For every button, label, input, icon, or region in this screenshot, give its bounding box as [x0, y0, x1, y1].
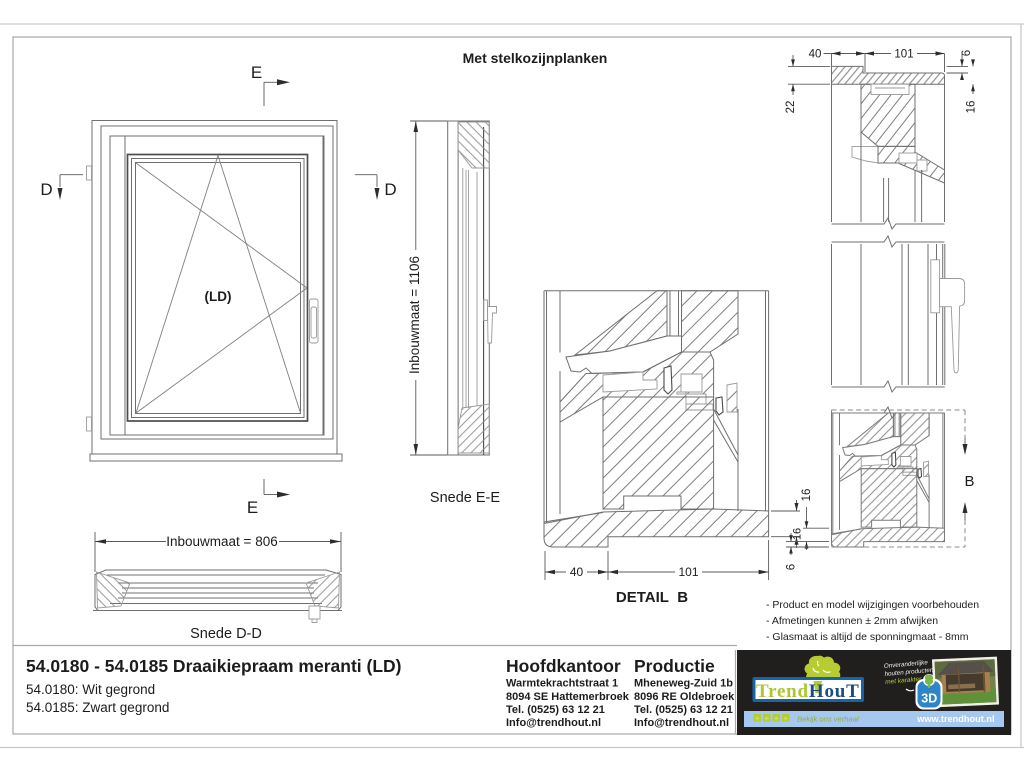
svg-text:✳: ✳ [774, 716, 779, 723]
svg-text:Hoofdkantoor: Hoofdkantoor [506, 656, 621, 676]
svg-text:Info@trendhout.nl: Info@trendhout.nl [634, 717, 729, 729]
svg-text:40: 40 [809, 49, 822, 61]
svg-text:DETAIL B: DETAIL B [616, 589, 688, 606]
svg-text:✳: ✳ [755, 716, 760, 723]
svg-text:101: 101 [678, 565, 698, 579]
svg-text:Met stelkozijnplanken: Met stelkozijnplanken [463, 50, 608, 66]
svg-text:✳: ✳ [764, 716, 769, 723]
svg-text:6: 6 [786, 564, 798, 570]
svg-text:E: E [247, 498, 258, 517]
svg-text:40: 40 [570, 565, 584, 579]
svg-text:16: 16 [801, 489, 813, 502]
svg-text:Tel. (0525) 63 12 21: Tel. (0525) 63 12 21 [634, 704, 733, 716]
svg-text:22: 22 [785, 101, 797, 114]
svg-text:- Glasmaat is altijd de sponni: - Glasmaat is altijd de sponningmaat - 8… [766, 631, 969, 643]
svg-text:16: 16 [792, 528, 804, 540]
svg-text:- Afmetingen kunnen ± 2mm afwi: - Afmetingen kunnen ± 2mm afwijken [766, 615, 938, 627]
svg-text:Info@trendhout.nl: Info@trendhout.nl [506, 717, 601, 729]
svg-text:www.trendhout.nl: www.trendhout.nl [916, 714, 994, 724]
svg-text:16: 16 [966, 101, 978, 114]
svg-text:Inbouwmaat = 1106: Inbouwmaat = 1106 [407, 256, 422, 374]
svg-text:Mheneweg-Zuid 1b: Mheneweg-Zuid 1b [634, 678, 733, 690]
svg-text:E: E [251, 63, 262, 82]
svg-text:Snede E-E: Snede E-E [430, 490, 500, 506]
svg-text:54.0185: Zwart gegrond: 54.0185: Zwart gegrond [26, 700, 169, 715]
svg-text:Productie: Productie [634, 656, 715, 676]
svg-text:Warmtekrachtstraat 1: Warmtekrachtstraat 1 [506, 678, 618, 690]
svg-text:Bekijk ons verhaal: Bekijk ons verhaal [797, 715, 859, 724]
svg-text:(LD): (LD) [205, 289, 232, 304]
svg-text:✳: ✳ [783, 716, 788, 723]
svg-text:101: 101 [894, 49, 913, 61]
svg-text:D: D [384, 180, 396, 199]
svg-text:D: D [40, 180, 52, 199]
svg-text:8096 RE Oldebroek: 8096 RE Oldebroek [634, 691, 735, 703]
svg-text:Snede D-D: Snede D-D [190, 626, 262, 642]
svg-text:B: B [964, 473, 974, 490]
svg-text:6: 6 [961, 50, 973, 56]
svg-text:8094 SE Hattemerbroek: 8094 SE Hattemerbroek [506, 691, 630, 703]
svg-text:Inbouwmaat = 806: Inbouwmaat = 806 [166, 534, 277, 549]
svg-text:Tel. (0525) 63 12 21: Tel. (0525) 63 12 21 [506, 704, 605, 716]
svg-text:TrendHouT: TrendHouT [756, 681, 860, 702]
svg-text:54.0180: Wit gegrond: 54.0180: Wit gegrond [26, 682, 155, 697]
svg-text:3D: 3D [921, 692, 937, 706]
svg-text:- Product en model wijzigingen: - Product en model wijzigingen voorbehou… [766, 599, 979, 611]
svg-text:54.0180 - 54.0185 Draaikiepraa: 54.0180 - 54.0185 Draaikiepraam meranti … [26, 656, 401, 676]
